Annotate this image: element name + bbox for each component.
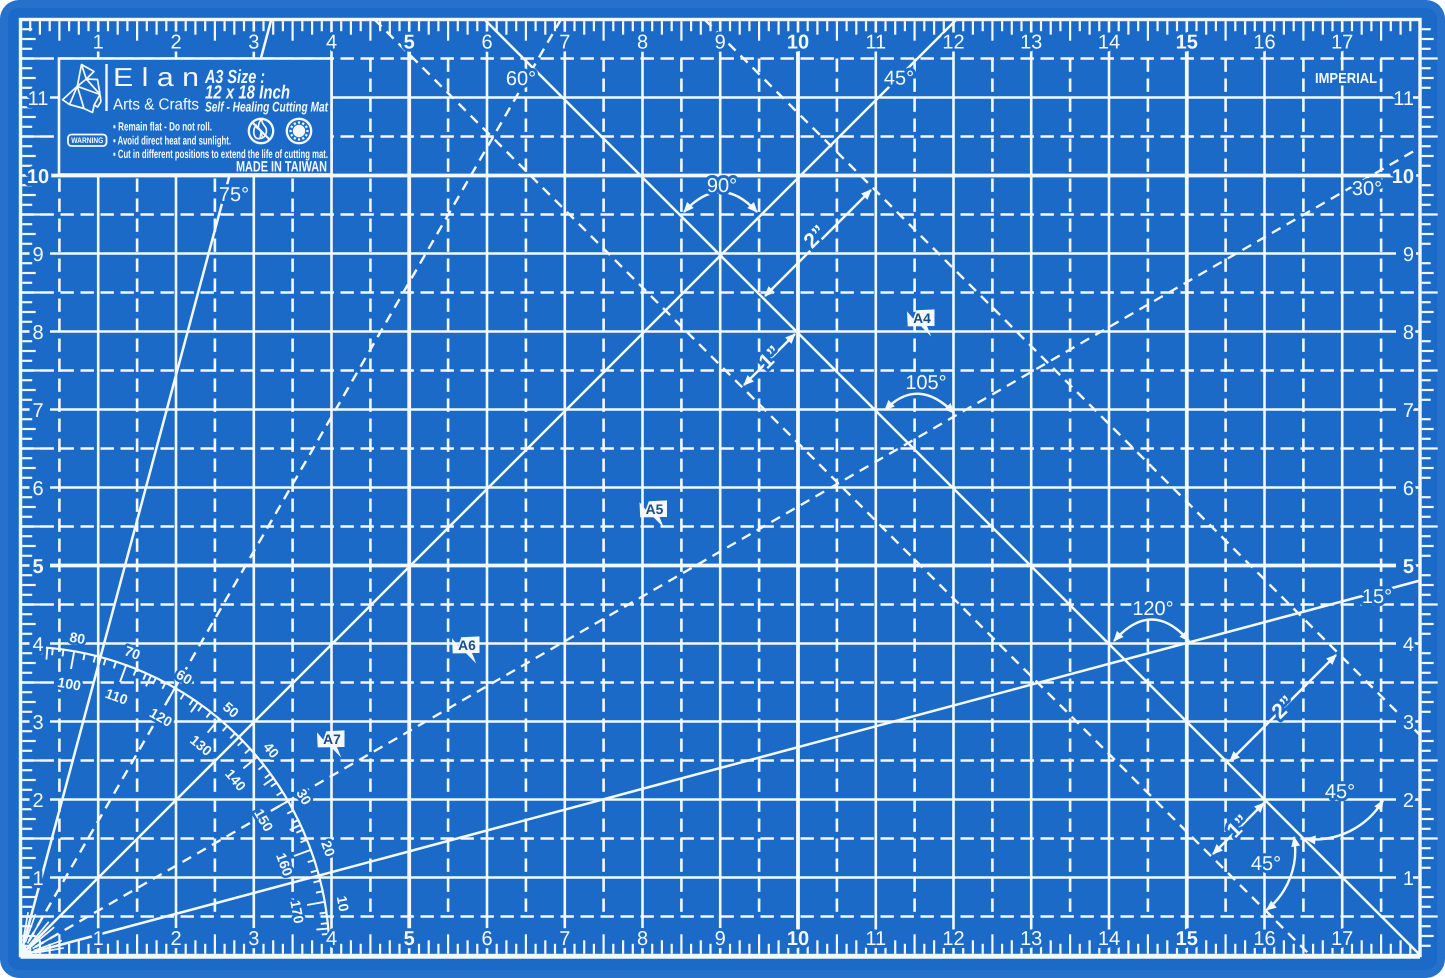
svg-text:17: 17 (1331, 32, 1353, 54)
svg-text:60°: 60° (506, 68, 536, 90)
svg-text:3: 3 (32, 712, 43, 734)
svg-text:9: 9 (32, 244, 43, 266)
svg-text:Arts & Crafts: Arts & Crafts (113, 97, 199, 114)
svg-text:2: 2 (1403, 790, 1414, 812)
svg-text:10: 10 (27, 166, 49, 188)
svg-text:12: 12 (942, 32, 964, 54)
svg-text:30°: 30° (1352, 178, 1382, 200)
svg-text:2: 2 (170, 32, 181, 54)
svg-text:120°: 120° (1132, 598, 1173, 620)
svg-text:A7: A7 (323, 732, 341, 747)
svg-text:5: 5 (404, 928, 415, 950)
svg-text:15: 15 (1176, 32, 1198, 54)
svg-text:75°: 75° (219, 184, 249, 206)
svg-text:1: 1 (1403, 868, 1414, 890)
svg-text:9: 9 (1403, 244, 1414, 266)
svg-text:13: 13 (1020, 928, 1042, 950)
svg-text:45°: 45° (1325, 781, 1355, 803)
svg-text:7: 7 (559, 928, 570, 950)
svg-text:9: 9 (715, 928, 726, 950)
svg-text:8: 8 (32, 322, 43, 344)
svg-text:4: 4 (1403, 634, 1414, 656)
svg-text:15: 15 (1176, 928, 1198, 950)
svg-text:13: 13 (1020, 32, 1042, 54)
svg-text:▪ Avoid direct heat and sunlig: ▪ Avoid direct heat and sunlight. (113, 134, 231, 148)
svg-text:6: 6 (481, 928, 492, 950)
svg-text:4: 4 (326, 32, 337, 54)
svg-text:10: 10 (787, 928, 809, 950)
svg-text:4: 4 (32, 634, 43, 656)
svg-text:A5: A5 (646, 502, 664, 517)
svg-text:6: 6 (481, 32, 492, 54)
svg-text:17: 17 (1331, 928, 1353, 950)
svg-text:10: 10 (787, 32, 809, 54)
svg-text:MADE IN TAIWAN: MADE IN TAIWAN (236, 159, 327, 176)
svg-text:IMPERIAL: IMPERIAL (1315, 71, 1377, 87)
svg-text:11: 11 (1393, 88, 1414, 110)
svg-text:5: 5 (404, 32, 415, 54)
svg-text:A4: A4 (913, 311, 931, 326)
svg-text:E l a n: E l a n (113, 62, 199, 92)
svg-text:8: 8 (637, 928, 648, 950)
svg-text:8: 8 (637, 32, 648, 54)
svg-text:10: 10 (1392, 166, 1414, 188)
svg-text:3: 3 (248, 928, 259, 950)
svg-text:11: 11 (28, 88, 49, 110)
svg-text:Self - Healing Cutting Mat: Self - Healing Cutting Mat (205, 99, 329, 115)
svg-text:16: 16 (1253, 928, 1275, 950)
svg-text:WARNING: WARNING (71, 136, 103, 145)
svg-text:1: 1 (93, 928, 104, 950)
svg-text:7: 7 (559, 32, 570, 54)
svg-text:45°: 45° (1251, 853, 1281, 875)
svg-text:5: 5 (1403, 556, 1414, 578)
svg-text:90°: 90° (707, 175, 737, 197)
svg-text:6: 6 (32, 478, 43, 500)
svg-text:7: 7 (32, 400, 43, 422)
svg-text:8: 8 (1403, 322, 1414, 344)
svg-text:▪ Remain flat - Do not roll.: ▪ Remain flat - Do not roll. (113, 120, 212, 134)
svg-text:3: 3 (248, 32, 259, 54)
svg-text:2: 2 (32, 790, 43, 812)
svg-text:11: 11 (865, 928, 886, 950)
svg-text:14: 14 (1098, 32, 1120, 54)
svg-text:1: 1 (32, 868, 43, 890)
svg-text:3: 3 (1403, 712, 1414, 734)
svg-text:14: 14 (1098, 928, 1120, 950)
svg-text:11: 11 (865, 32, 886, 54)
svg-text:A6: A6 (458, 638, 476, 653)
svg-text:80: 80 (68, 629, 86, 647)
svg-text:10: 10 (334, 895, 352, 913)
svg-text:7: 7 (1403, 400, 1414, 422)
svg-text:16: 16 (1253, 32, 1275, 54)
svg-text:2: 2 (170, 928, 181, 950)
svg-text:105°: 105° (905, 372, 946, 394)
svg-text:9: 9 (715, 32, 726, 54)
svg-text:4: 4 (326, 928, 337, 950)
svg-text:5: 5 (32, 556, 43, 578)
svg-text:15°: 15° (1362, 586, 1392, 608)
svg-text:6: 6 (1403, 478, 1414, 500)
svg-text:1: 1 (93, 32, 104, 54)
svg-text:12: 12 (942, 928, 964, 950)
svg-text:45°: 45° (884, 68, 914, 90)
